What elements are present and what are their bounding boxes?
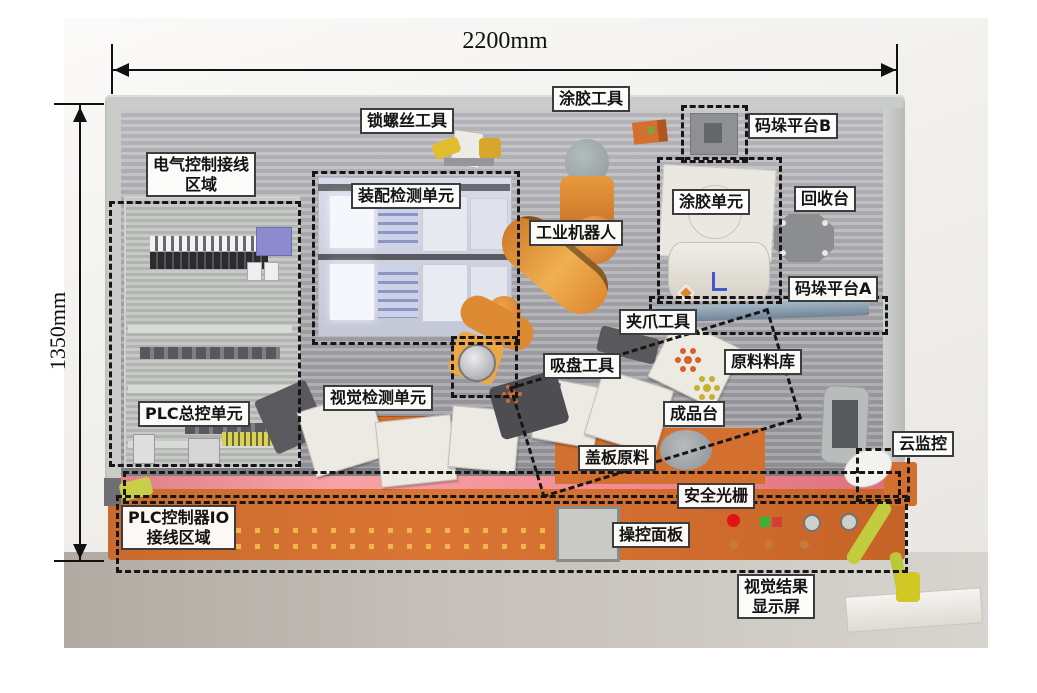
dimension-width-line xyxy=(113,69,897,71)
label-glue-tool: 涂胶工具 xyxy=(552,86,630,112)
label-plc-master: PLC总控单元 xyxy=(138,401,250,427)
dashed-region-pallet-b xyxy=(681,105,748,163)
cloud-monitor-screen xyxy=(832,400,858,448)
glue-tool-dot xyxy=(647,126,655,134)
dashed-region-suction-tool xyxy=(451,336,518,398)
label-recycle-table: 回收台 xyxy=(794,186,856,212)
dimension-height-line xyxy=(79,105,81,561)
arrowhead-right xyxy=(881,63,896,77)
label-suction-tool: 吸盘工具 xyxy=(543,353,621,379)
label-gripper-tool: 夹爪工具 xyxy=(619,309,697,335)
label-finished-table: 成品台 xyxy=(663,401,725,427)
label-assembly-unit: 装配检测单元 xyxy=(351,183,461,209)
arrowhead-up xyxy=(73,107,87,122)
screw-tool-yellow xyxy=(479,138,501,158)
dimension-height-tick-bottom xyxy=(54,560,104,562)
dimension-width-text: 2200mm xyxy=(455,28,555,55)
label-vision-unit: 视觉检测单元 xyxy=(323,385,433,411)
dimension-height-tick-top xyxy=(54,103,104,105)
arrowhead-left xyxy=(114,63,129,77)
dashed-region-electrical xyxy=(109,201,301,467)
label-safety-curtain: 安全光栅 xyxy=(677,483,755,509)
label-raw-material: 原料料库 xyxy=(724,349,802,375)
label-cover-material: 盖板原料 xyxy=(578,445,656,471)
monitor-arm-mount xyxy=(896,572,920,602)
label-plc-io-area: PLC控制器IO 接线区域 xyxy=(121,505,236,550)
dimension-height-text: 1350mm xyxy=(45,281,71,381)
arrowhead-down xyxy=(73,544,87,559)
dimension-width-tick-left xyxy=(111,44,113,94)
label-pallet-a: 码垛平台A xyxy=(788,276,878,302)
dimension-width-tick-right xyxy=(896,44,898,94)
workbench-diagram: 锁螺丝工具 涂胶工具 码垛平台B 电气控制接线 区域 装配检测单元 工业机器人 … xyxy=(0,0,1037,693)
label-glue-unit: 涂胶单元 xyxy=(672,189,750,215)
label-vision-display: 视觉结果 显示屏 xyxy=(737,574,815,619)
tool-base-plate xyxy=(444,158,494,166)
label-pallet-b: 码垛平台B xyxy=(748,113,838,139)
label-electrical-area: 电气控制接线 区域 xyxy=(146,152,256,197)
label-control-panel: 操控面板 xyxy=(612,522,690,548)
label-lock-screw-tool: 锁螺丝工具 xyxy=(360,108,454,134)
dashed-region-glue-unit xyxy=(657,157,782,304)
label-industrial-robot: 工业机器人 xyxy=(529,220,623,246)
label-cloud-monitor: 云监控 xyxy=(892,431,954,457)
